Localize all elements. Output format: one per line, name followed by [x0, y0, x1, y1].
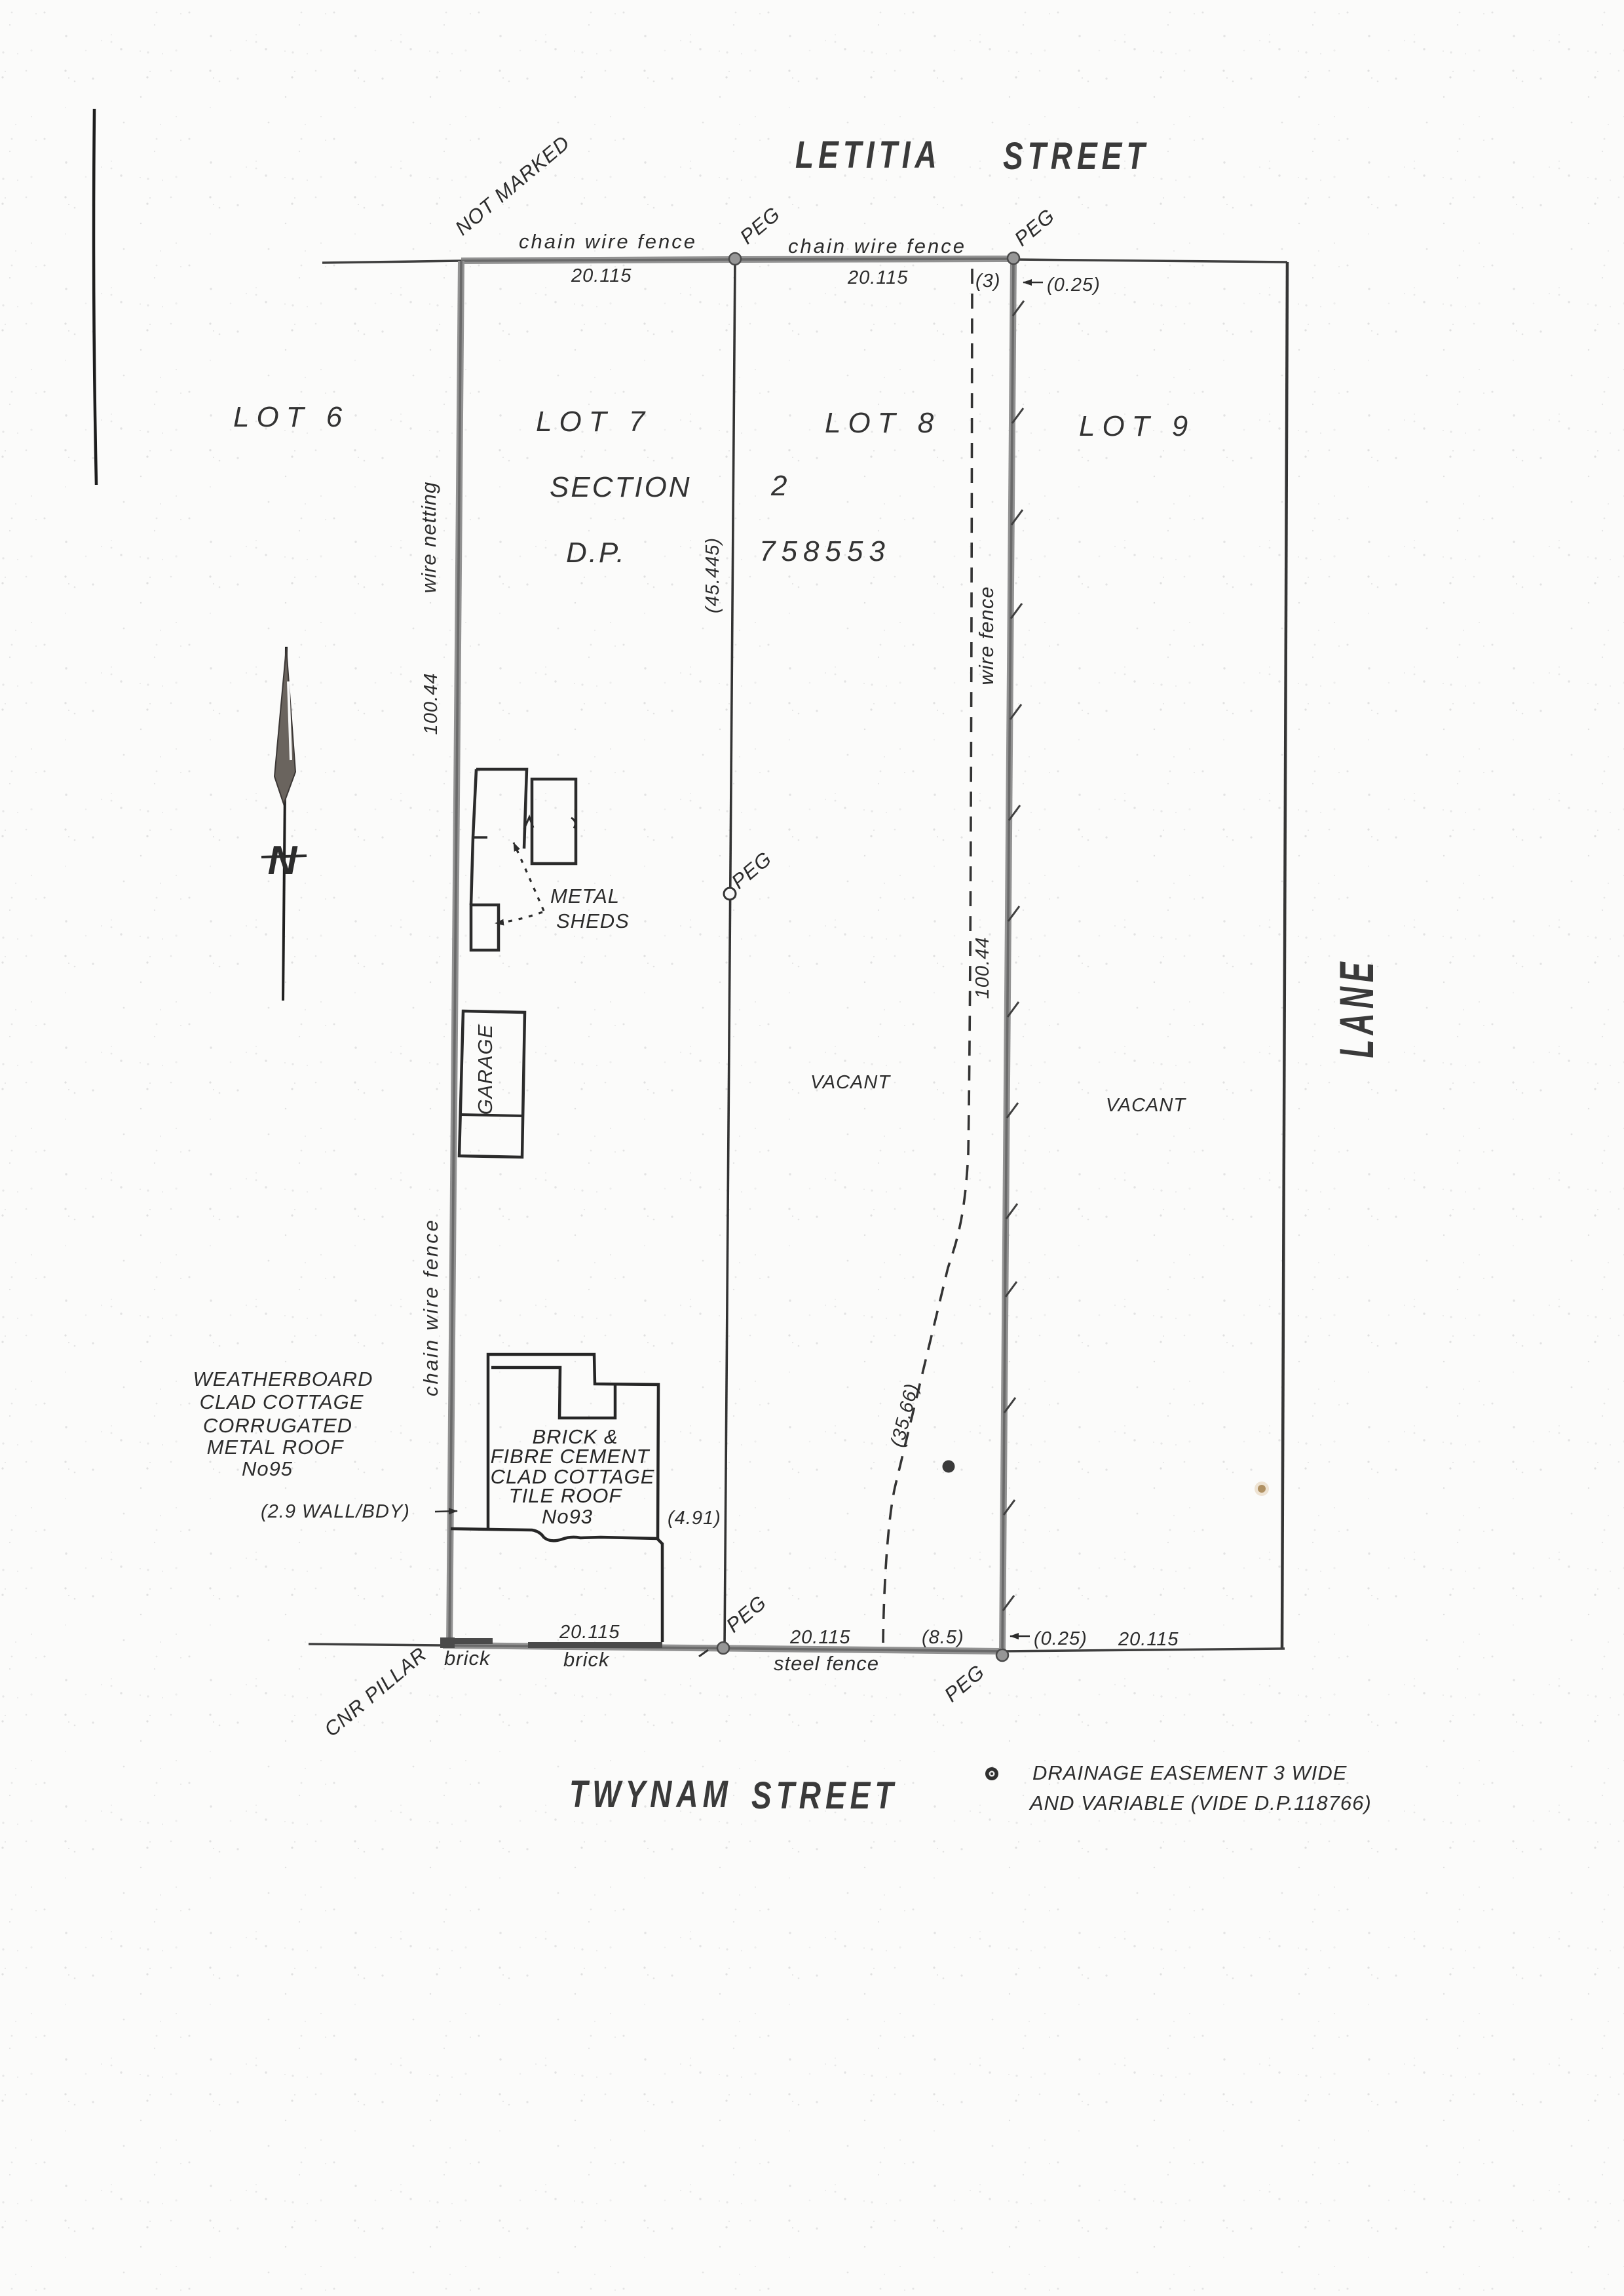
- svg-text:METAL ROOF: METAL ROOF: [207, 1436, 345, 1459]
- svg-text:LOT 7: LOT 7: [536, 406, 652, 438]
- svg-text:VACANT: VACANT: [1106, 1095, 1186, 1116]
- svg-text:(45.445): (45.445): [702, 537, 723, 613]
- svg-text:brick: brick: [444, 1647, 491, 1670]
- svg-text:LOT 8: LOT 8: [825, 407, 941, 439]
- svg-text:No93: No93: [542, 1505, 593, 1528]
- svg-text:SECTION: SECTION: [550, 471, 692, 503]
- svg-text:2: 2: [770, 470, 794, 502]
- svg-text:20.115: 20.115: [559, 1622, 620, 1643]
- svg-text:20.115: 20.115: [1118, 1629, 1179, 1650]
- svg-text:AND VARIABLE (VIDE D.P.118766): AND VARIABLE (VIDE D.P.118766): [1029, 1791, 1372, 1814]
- svg-text:METAL: METAL: [550, 885, 620, 908]
- svg-text:wire fence: wire fence: [975, 586, 998, 685]
- svg-text:LETITIA: LETITIA: [795, 134, 941, 177]
- svg-text:chain wire fence: chain wire fence: [519, 230, 697, 253]
- svg-text:TWYNAM: TWYNAM: [569, 1773, 732, 1816]
- svg-text:STREET: STREET: [751, 1774, 897, 1818]
- svg-text:DRAINAGE EASEMENT 3 WIDE: DRAINAGE EASEMENT 3 WIDE: [1032, 1761, 1347, 1784]
- svg-text:(2.9 WALL/BDY): (2.9 WALL/BDY): [261, 1501, 410, 1522]
- svg-text:steel fence: steel fence: [774, 1652, 879, 1675]
- svg-text:No95: No95: [242, 1457, 293, 1480]
- svg-text:(8.5): (8.5): [922, 1627, 964, 1648]
- svg-text:(0.25): (0.25): [1047, 275, 1101, 296]
- svg-text:D.P.: D.P.: [566, 537, 626, 569]
- svg-text:(4.91): (4.91): [668, 1508, 721, 1529]
- svg-text:brick: brick: [563, 1648, 610, 1671]
- svg-text:STREET: STREET: [1003, 135, 1149, 178]
- svg-text:CLAD COTTAGE: CLAD COTTAGE: [200, 1390, 364, 1413]
- svg-text:N: N: [268, 838, 298, 883]
- svg-text:GARAGE: GARAGE: [474, 1024, 497, 1115]
- svg-text:758553: 758553: [759, 535, 891, 567]
- svg-text:(0.25): (0.25): [1034, 1628, 1087, 1649]
- svg-text:VACANT: VACANT: [810, 1072, 891, 1093]
- svg-text:chain wire fence: chain wire fence: [788, 235, 966, 258]
- svg-text:TILE ROOF: TILE ROOF: [509, 1484, 623, 1507]
- svg-text:100.44: 100.44: [421, 673, 442, 735]
- svg-text:LOT 6: LOT 6: [233, 401, 349, 433]
- svg-text:(3): (3): [975, 271, 1000, 292]
- svg-text:chain wire fence: chain wire fence: [419, 1218, 442, 1396]
- svg-text:20.115: 20.115: [789, 1627, 851, 1648]
- svg-text:20.115: 20.115: [571, 265, 632, 286]
- svg-text:CORRUGATED: CORRUGATED: [203, 1414, 352, 1437]
- svg-text:LOT 9: LOT 9: [1079, 410, 1195, 442]
- svg-text:wire netting: wire netting: [417, 482, 440, 594]
- svg-text:WEATHERBOARD: WEATHERBOARD: [193, 1368, 373, 1390]
- svg-text:FIBRE CEMENT: FIBRE CEMENT: [491, 1445, 651, 1468]
- svg-text:SHEDS: SHEDS: [556, 909, 630, 932]
- svg-text:20.115: 20.115: [847, 267, 909, 288]
- svg-text:LANE: LANE: [1330, 957, 1384, 1058]
- svg-text:100.44: 100.44: [972, 937, 993, 999]
